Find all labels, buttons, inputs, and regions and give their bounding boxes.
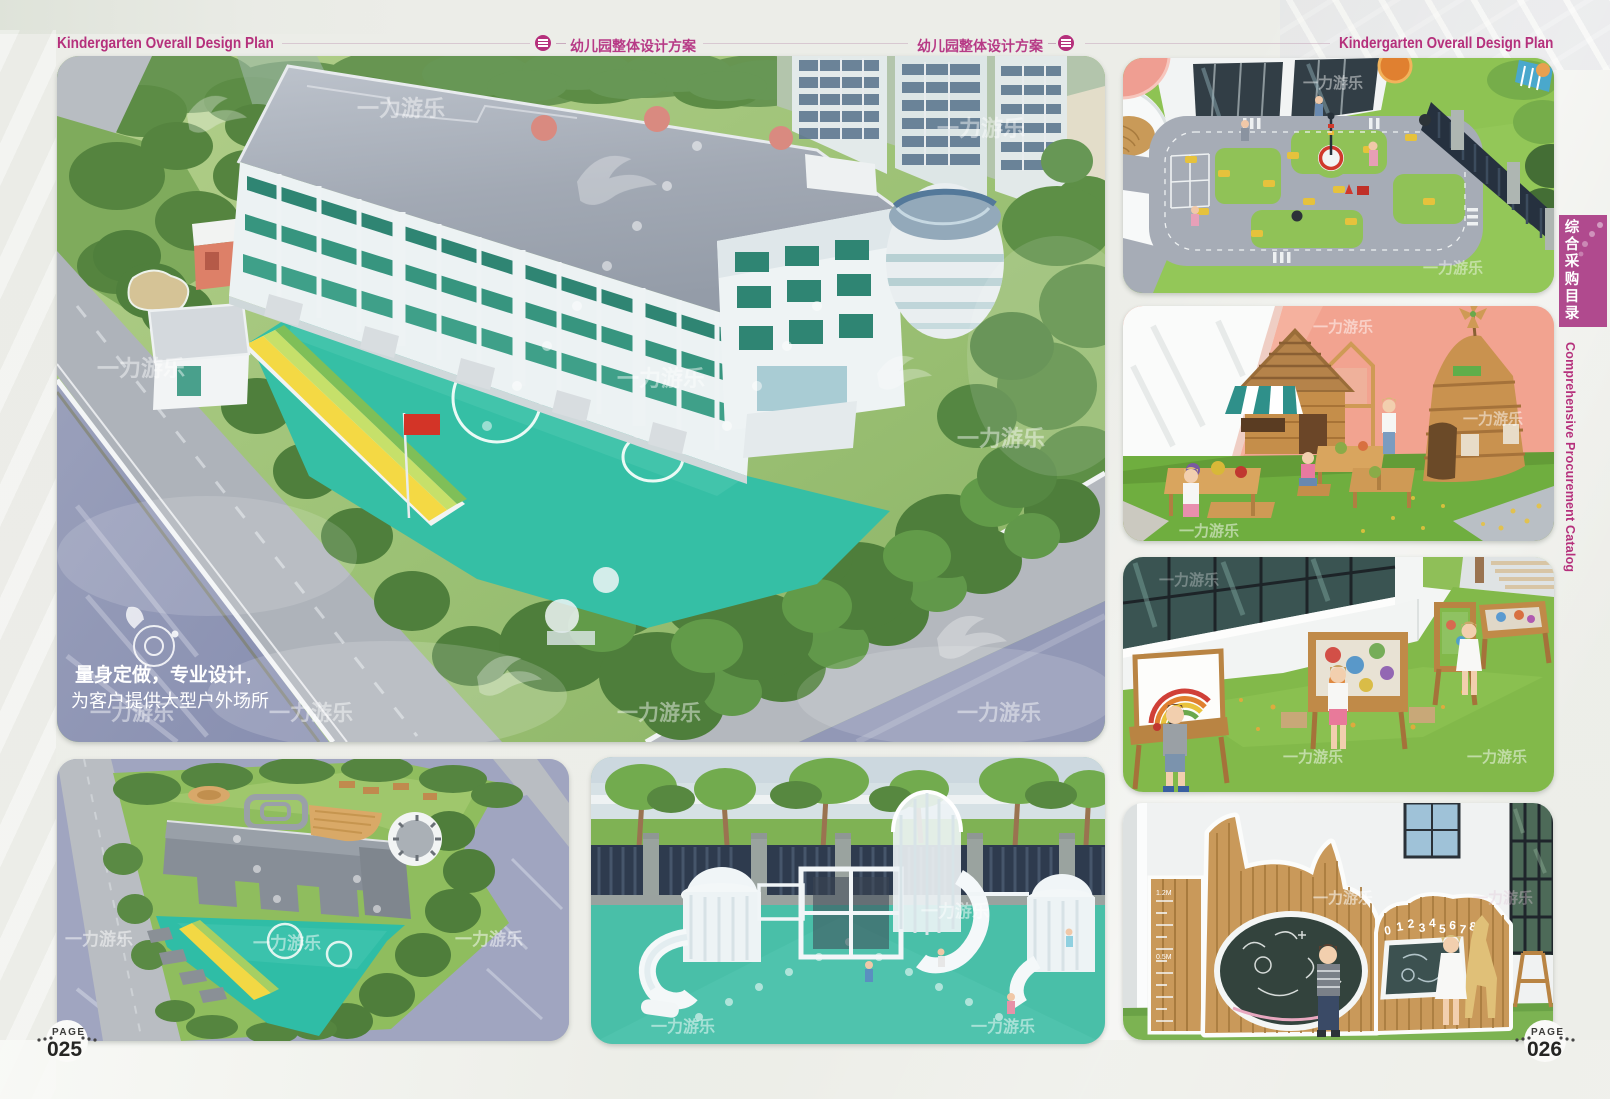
svg-text:量身定做，专业设计,: 量身定做，专业设计, xyxy=(75,663,251,686)
svg-text:5: 5 xyxy=(1439,922,1446,936)
svg-text:一力游乐: 一力游乐 xyxy=(1423,259,1483,277)
svg-text:一力游乐: 一力游乐 xyxy=(1159,571,1219,589)
svg-text:一力游乐: 一力游乐 xyxy=(971,1017,1035,1036)
svg-text:一力游乐: 一力游乐 xyxy=(617,366,705,391)
svg-text:一力游乐: 一力游乐 xyxy=(253,933,321,953)
svg-text:一力游乐: 一力游乐 xyxy=(65,929,133,949)
svg-text:1.2M: 1.2M xyxy=(1156,890,1172,897)
svg-text:一力游乐: 一力游乐 xyxy=(921,901,989,921)
svg-text:6: 6 xyxy=(1449,918,1457,932)
svg-text:为客户提供大型户外场所: 为客户提供大型户外场所 xyxy=(71,691,269,711)
svg-text:一力游乐: 一力游乐 xyxy=(1313,318,1373,336)
svg-text:4: 4 xyxy=(1429,916,1436,930)
svg-text:一力游乐: 一力游乐 xyxy=(1283,748,1343,766)
svg-text:一力游乐: 一力游乐 xyxy=(1303,74,1363,92)
svg-text:一力游乐: 一力游乐 xyxy=(1467,748,1527,766)
svg-text:一力游乐: 一力游乐 xyxy=(1179,522,1239,540)
svg-text:一力游乐: 一力游乐 xyxy=(651,1017,715,1036)
svg-text:3: 3 xyxy=(1418,921,1426,935)
svg-text:一力游乐: 一力游乐 xyxy=(357,96,445,121)
svg-text:一力游乐: 一力游乐 xyxy=(455,929,523,949)
svg-text:一力游乐: 一力游乐 xyxy=(1463,410,1523,428)
svg-text:一力游乐: 一力游乐 xyxy=(1313,889,1373,907)
svg-text:一力游乐: 一力游乐 xyxy=(617,701,701,725)
svg-text:0.5M: 0.5M xyxy=(1156,954,1172,961)
svg-text:一力游乐: 一力游乐 xyxy=(1473,889,1533,907)
svg-text:一力游乐: 一力游乐 xyxy=(937,116,1025,141)
svg-text:一力游乐: 一力游乐 xyxy=(97,356,185,381)
